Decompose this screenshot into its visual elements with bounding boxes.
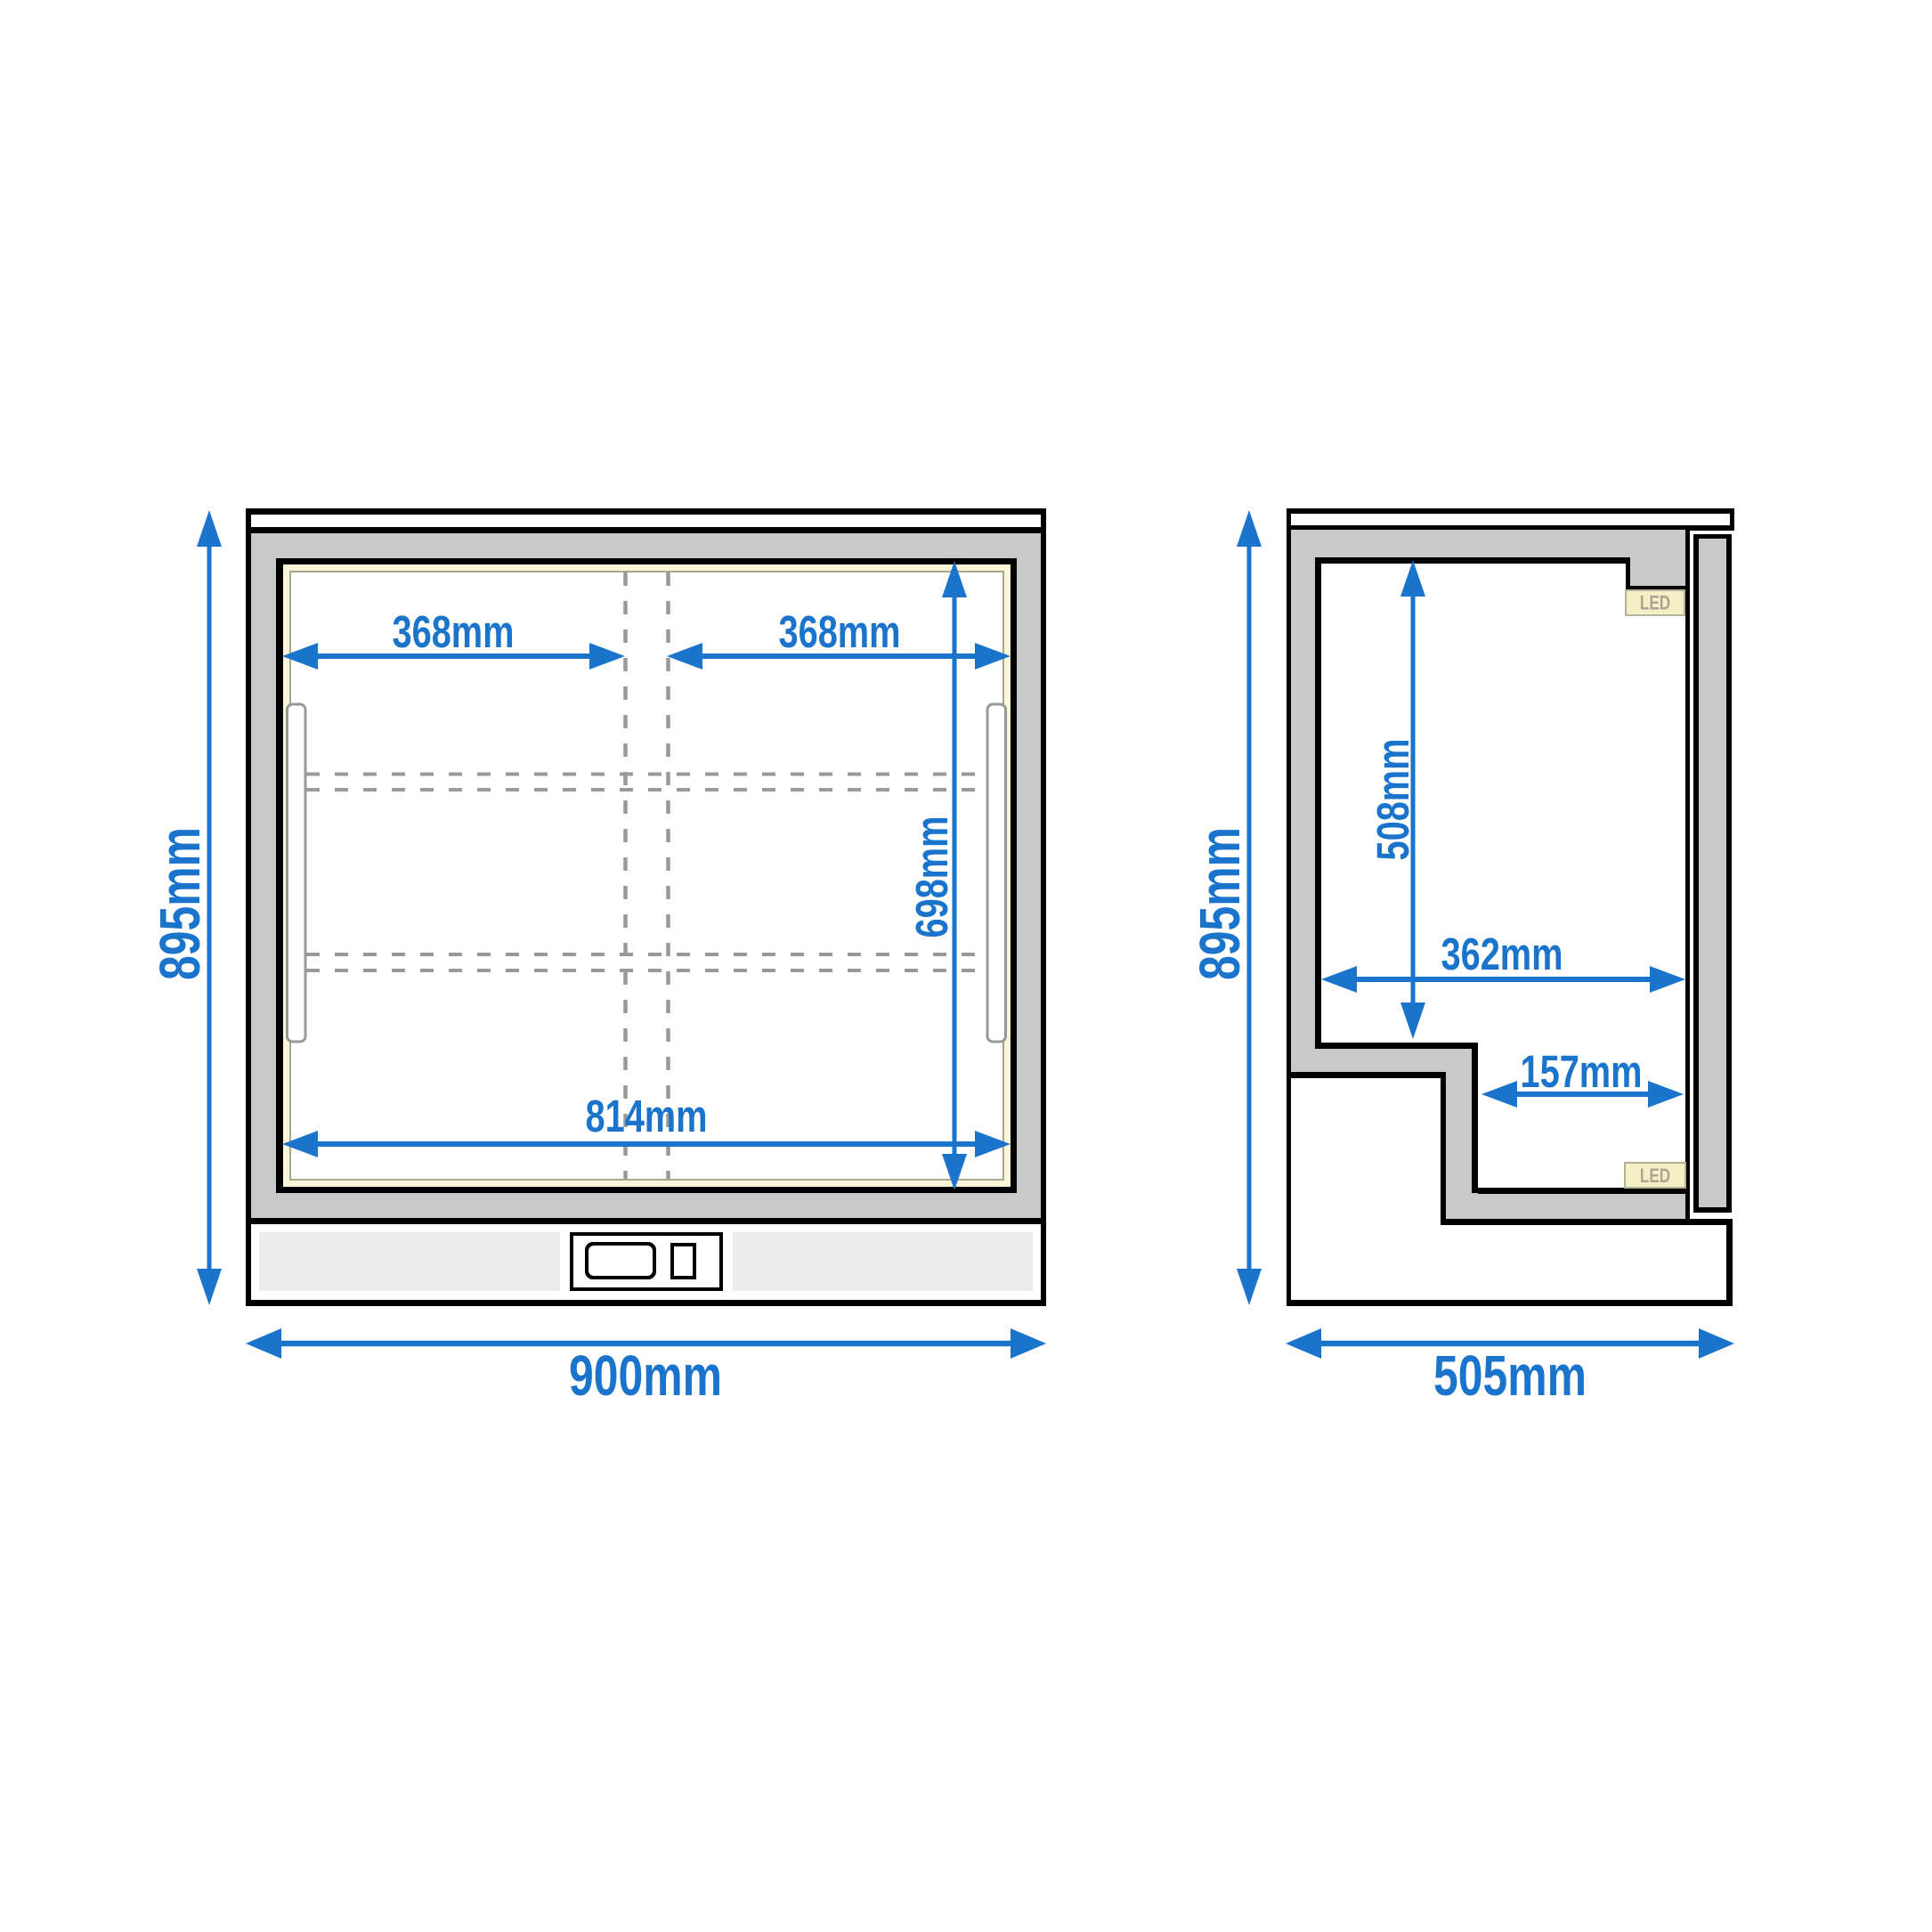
svg-text:900mm: 900mm (569, 1344, 722, 1408)
svg-text:362mm: 362mm (1441, 929, 1563, 979)
svg-text:368mm: 368mm (778, 606, 900, 657)
svg-text:895mm: 895mm (149, 827, 212, 980)
svg-text:LED: LED (1640, 593, 1670, 615)
svg-text:368mm: 368mm (392, 606, 514, 657)
svg-text:698mm: 698mm (906, 816, 957, 938)
svg-text:814mm: 814mm (585, 1091, 707, 1141)
svg-text:505mm: 505mm (1433, 1344, 1587, 1408)
svg-text:508mm: 508mm (1368, 738, 1418, 860)
svg-text:LED: LED (1640, 1165, 1670, 1188)
svg-text:157mm: 157mm (1520, 1046, 1642, 1097)
svg-text:895mm: 895mm (1189, 827, 1252, 980)
